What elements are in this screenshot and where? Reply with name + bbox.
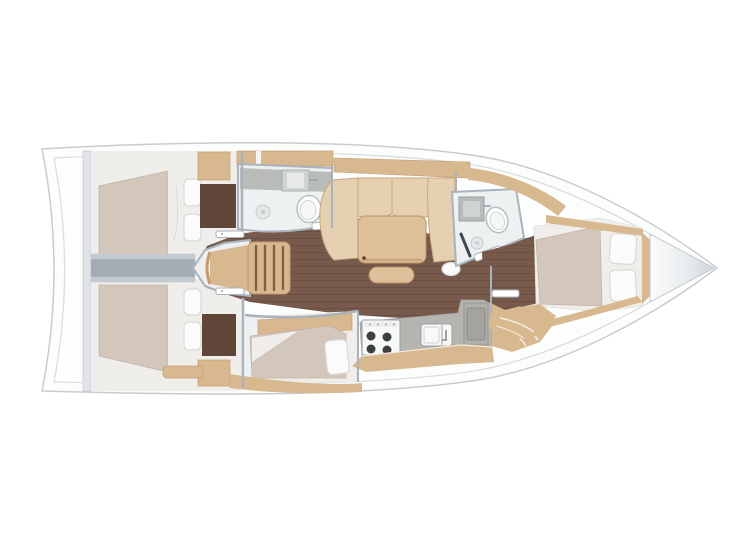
- beam-core: [91, 259, 195, 277]
- aft-cabin-port-cabinet: [198, 152, 230, 180]
- salon-table: [358, 216, 426, 263]
- stove-burner-1: [367, 332, 376, 341]
- aft-cabin-step: [163, 366, 203, 378]
- door-handle-1: [221, 233, 223, 235]
- forward-head-drain-dot: [475, 241, 479, 245]
- aft-cabin-starboard: [91, 279, 242, 391]
- door-handle-2: [221, 290, 223, 292]
- forward-head-sink-basin: [463, 201, 480, 217]
- sofa-back-cushion-2: [392, 178, 428, 220]
- stove-knob-3: [385, 324, 387, 326]
- sofa-right-seat: [428, 178, 455, 262]
- aft-cabin-port-mattress: [99, 171, 168, 258]
- stove-knob-4: [393, 324, 395, 326]
- aft-cabin-starboard-pillow-2: [184, 322, 201, 350]
- yacht-floor-plan-canvas: [0, 0, 750, 540]
- salon-table-leg-dot: [362, 256, 366, 260]
- aft-head-cabinet-notch: [256, 151, 261, 166]
- aft-cabin-port-sheet: [168, 171, 184, 258]
- stove-knob-2: [377, 324, 379, 326]
- aft-head-drain-dot: [261, 210, 265, 214]
- forward-pillow-1: [609, 233, 637, 265]
- aft-cabin-port-pillow-2: [184, 214, 201, 241]
- aft-cabin-starboard-pillow-1: [184, 289, 201, 315]
- mid-cabin-pillow: [324, 339, 349, 375]
- stern-center-beam: [91, 254, 195, 282]
- transom-bulkhead: [83, 151, 91, 391]
- forward-headboard: [642, 232, 650, 304]
- aft-head-sink-basin: [287, 173, 304, 188]
- forward-bed-mattress: [536, 226, 602, 306]
- aft-head-toilet-seat: [300, 201, 316, 220]
- mid-cabin-berth: [230, 311, 362, 393]
- aft-cabin-starboard-door: [216, 288, 244, 295]
- sofa-back-cushion-1: [358, 178, 392, 219]
- galley-fridge-lid: [467, 308, 485, 340]
- aft-cabin-port-door: [216, 231, 244, 238]
- salon-stool: [369, 267, 414, 283]
- forward-pillow-2: [609, 269, 637, 301]
- sofa-left-seat: [320, 178, 358, 260]
- forward-cabin-door: [492, 290, 519, 297]
- aft-cabin-port-wardrobe-floor: [200, 184, 236, 228]
- stove-knob-1: [369, 324, 371, 326]
- yacht-floor-plan: [0, 0, 750, 540]
- aft-cabin-port-pillow-1: [184, 179, 201, 206]
- stove-burner-2: [383, 333, 392, 342]
- aft-cabin-starboard-wardrobe-floor: [202, 314, 236, 356]
- stairs-landing: [210, 245, 248, 291]
- stove-burner-3: [367, 345, 376, 354]
- aft-cabin-starboard-sheet: [168, 285, 184, 372]
